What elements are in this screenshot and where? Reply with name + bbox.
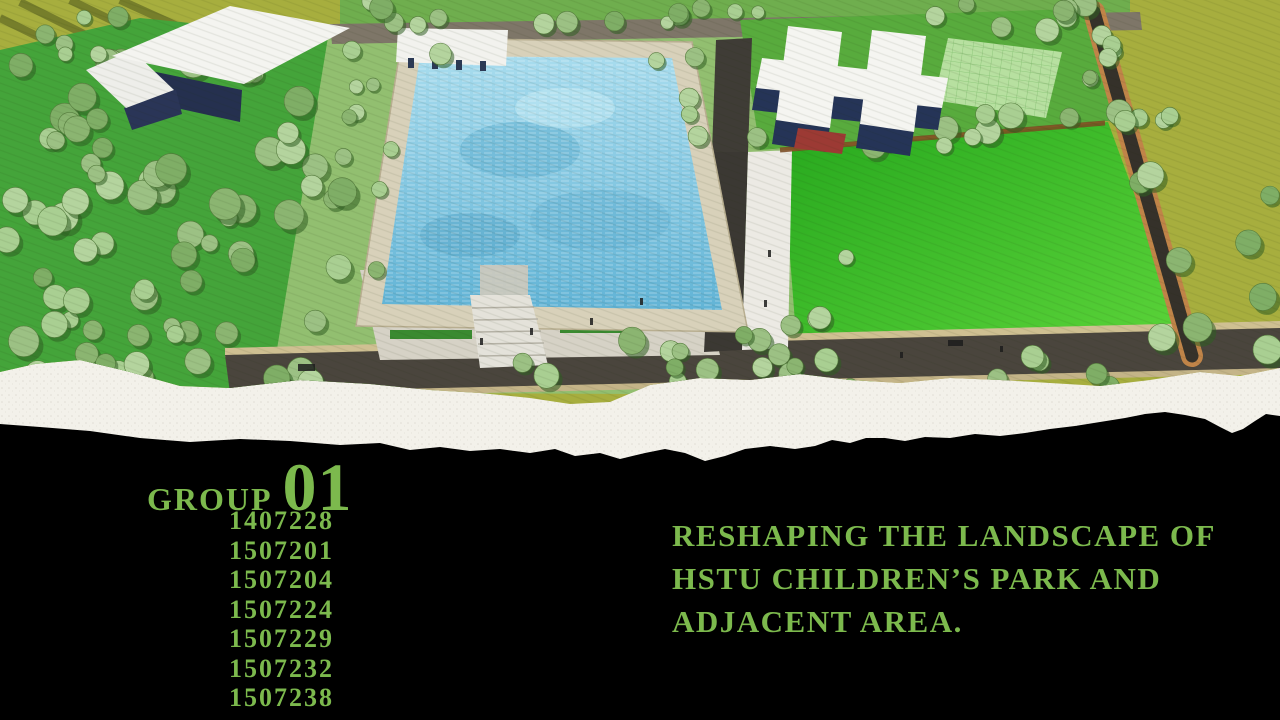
member-id: 1507238 (229, 683, 334, 713)
member-id: 1507229 (229, 624, 334, 654)
title-line: ADJACENT AREA. (672, 600, 1252, 643)
project-title: RESHAPING THE LANDSCAPE OF HSTU CHILDREN… (672, 514, 1252, 643)
member-id-list: 1407228 1507201 1507204 1507224 1507229 … (229, 506, 334, 713)
presentation-slide: GROUP 01 1407228 1507201 1507204 1507224… (0, 0, 1280, 720)
title-line: RESHAPING THE LANDSCAPE OF (672, 514, 1252, 557)
member-id: 1507204 (229, 565, 334, 595)
hero-image (0, 0, 1280, 470)
member-id: 1407228 (229, 506, 334, 536)
member-id: 1507224 (229, 595, 334, 625)
member-id: 1507201 (229, 536, 334, 566)
member-id: 1507232 (229, 654, 334, 684)
title-line: HSTU CHILDREN’S PARK AND (672, 557, 1252, 600)
